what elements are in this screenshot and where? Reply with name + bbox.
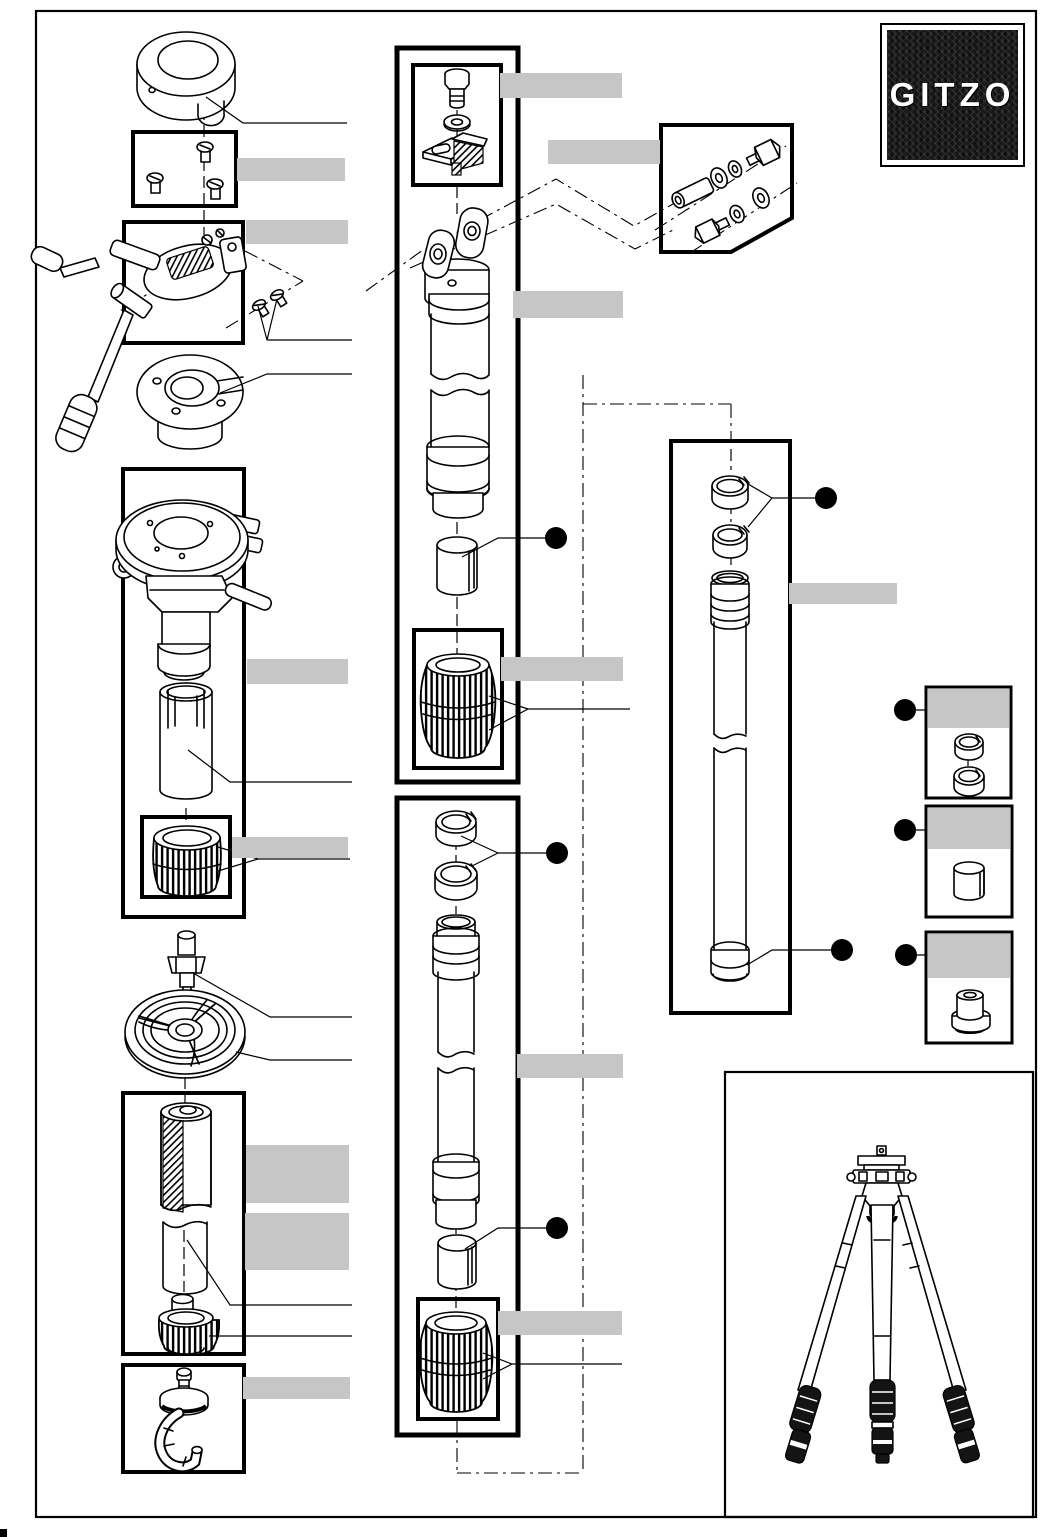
redacted-label (246, 220, 348, 244)
clamp-kit (423, 69, 487, 175)
redacted-label (245, 1213, 349, 1270)
redacted-label (243, 1377, 350, 1399)
crank-screw-2 (269, 288, 290, 309)
callout-dot (894, 699, 916, 721)
callout-dot (831, 939, 853, 961)
flange-plate-part (137, 355, 243, 449)
washer-3 (750, 185, 773, 210)
leg-lock-ring-2 (420, 1312, 493, 1412)
weight-hook-part (160, 1368, 208, 1467)
hardware-kit (670, 137, 784, 245)
bolt-1 (744, 137, 784, 170)
redacted-label (501, 657, 623, 681)
redacted-label (513, 291, 623, 318)
diagram-page: GITZO (0, 0, 1044, 1537)
redacted-label (928, 808, 1010, 849)
redacted-label (517, 1054, 623, 1078)
callout-dot (546, 1217, 568, 1239)
brand-logo-text: GITZO (890, 76, 1016, 114)
leg-lock-ring-1 (421, 654, 496, 758)
stud-bolt-part (168, 931, 205, 994)
callout-dot (894, 819, 916, 841)
redacted-label (789, 583, 897, 604)
screw-2 (147, 173, 163, 193)
callout-dot (895, 944, 917, 966)
bushing-kit-1 (954, 734, 984, 796)
redacted-label (498, 1311, 622, 1335)
lower-leg-tube (433, 915, 479, 1229)
top-ring-part (137, 32, 235, 126)
ground-disc-part (125, 990, 245, 1078)
redacted-label (247, 659, 348, 684)
callout-dot (546, 842, 568, 864)
redacted-label (237, 158, 345, 181)
washer-2 (726, 159, 744, 180)
washer-4 (727, 203, 747, 225)
screw-1 (197, 142, 213, 162)
bushing-kit-3 (952, 990, 990, 1033)
redacted-label (246, 1145, 349, 1203)
screw-set (147, 142, 223, 199)
axis-lines (184, 108, 968, 1312)
leg-bushing-2 (438, 1235, 476, 1289)
callout-dot (545, 527, 567, 549)
tripod-illustration (784, 1146, 980, 1464)
column-sleeve-part (160, 683, 212, 799)
redacted-label (928, 934, 1010, 978)
middle-leg-tube (711, 571, 749, 981)
column-casting-part (113, 500, 273, 680)
exploded-diagram (0, 0, 1044, 1537)
brand-logo-plate: GITZO (887, 30, 1018, 160)
redacted-label (232, 837, 348, 858)
column-lock-ring (153, 826, 221, 896)
upper-leg-tube (427, 294, 489, 518)
bushing-kit-2 (954, 862, 984, 900)
callout-dot (815, 487, 837, 509)
screw-3 (207, 179, 223, 199)
redacted-label (928, 689, 1009, 728)
bolt-2 (691, 213, 731, 245)
redacted-label (500, 73, 622, 98)
middle-leg-rings (712, 476, 749, 558)
print-mark (0, 1529, 7, 1537)
brand-logo: GITZO (880, 23, 1025, 167)
redacted-label (548, 140, 660, 164)
leg-bushing-1 (437, 537, 477, 595)
column-end-cap-part (159, 1295, 219, 1355)
